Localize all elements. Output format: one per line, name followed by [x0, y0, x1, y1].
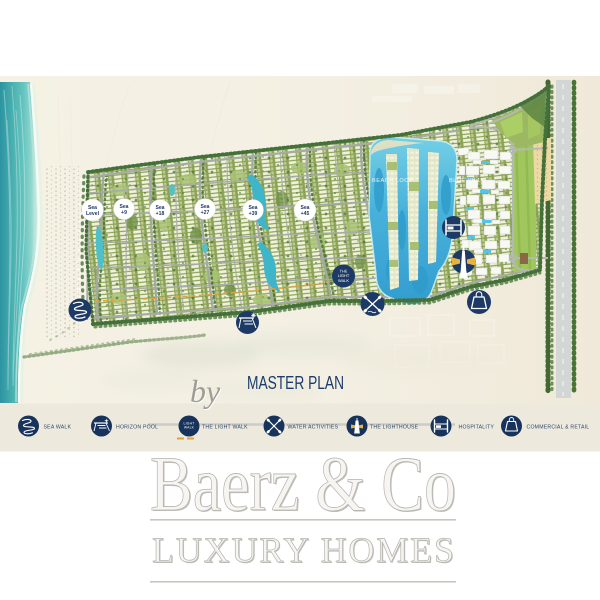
- svg-text:by: by: [190, 373, 221, 409]
- svg-text:Baerz & Co: Baerz & Co: [150, 440, 456, 527]
- svg-text:+9: +9: [121, 210, 127, 216]
- svg-text:+39: +39: [249, 211, 258, 217]
- svg-text:THE LIGHT WALK: THE LIGHT WALK: [202, 425, 248, 431]
- svg-text:+27: +27: [201, 210, 210, 216]
- svg-text:HORIZON POOL: HORIZON POOL: [116, 425, 158, 431]
- svg-text:WALK: WALK: [338, 278, 349, 283]
- svg-text:WALK: WALK: [184, 426, 195, 430]
- svg-text:+18: +18: [156, 211, 165, 217]
- svg-text:THE LIGHTHOUSE: THE LIGHTHOUSE: [370, 425, 419, 431]
- svg-text:MASTER PLAN: MASTER PLAN: [247, 372, 344, 393]
- svg-text:BEACH LOOP: BEACH LOOP: [372, 178, 413, 184]
- svg-text:WATER ACTIVITIES: WATER ACTIVITIES: [288, 425, 339, 431]
- svg-text:+45: +45: [301, 211, 310, 217]
- svg-text:HOSPITALITY: HOSPITALITY: [459, 425, 495, 431]
- svg-text:COMMERCIAL & RETAIL: COMMERCIAL & RETAIL: [527, 425, 590, 431]
- svg-text:BLUE VILLE: BLUE VILLE: [449, 178, 485, 184]
- svg-text:SEA WALK: SEA WALK: [44, 425, 72, 431]
- svg-text:Level: Level: [86, 211, 100, 217]
